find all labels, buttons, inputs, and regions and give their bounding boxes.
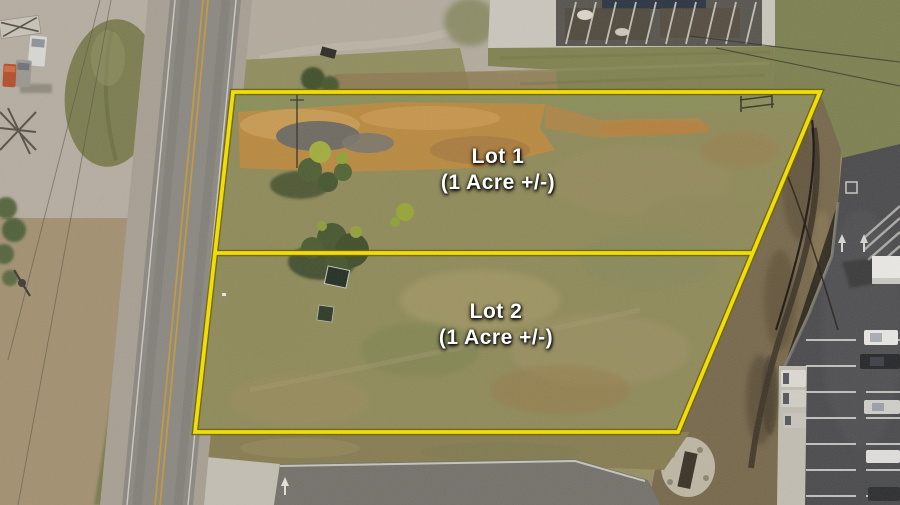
photo-grain: [0, 0, 900, 505]
aerial-photo-canvas: [0, 0, 900, 505]
aerial-photo: Lot 1 (1 Acre +/-) Lot 2 (1 Acre +/-): [0, 0, 900, 505]
